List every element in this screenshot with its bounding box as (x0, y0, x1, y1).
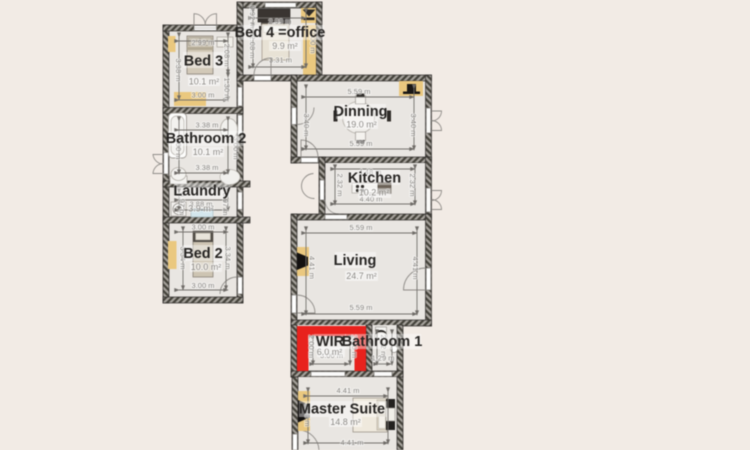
svg-text:Bed 3: Bed 3 (184, 54, 224, 70)
svg-text:10.1 m²: 10.1 m² (189, 77, 220, 87)
svg-text:3.34 m: 3.34 m (224, 247, 233, 270)
svg-text:2.99 m: 2.99 m (192, 38, 215, 47)
svg-text:14.8 m²: 14.8 m² (330, 417, 361, 427)
svg-text:3.40 m: 3.40 m (409, 114, 418, 137)
svg-text:3.38 m: 3.38 m (174, 59, 183, 82)
svg-text:3.38 m: 3.38 m (196, 163, 219, 172)
svg-text:2.32 m: 2.32 m (408, 174, 417, 197)
svg-text:24.7 m²: 24.7 m² (346, 271, 377, 281)
svg-text:3.40 m: 3.40 m (302, 114, 311, 137)
svg-text:3.9 m²: 3.9 m² (188, 204, 214, 214)
svg-text:Kitchen: Kitchen (348, 171, 401, 187)
svg-text:5.59 m: 5.59 m (350, 139, 373, 148)
svg-text:3.00 m: 3.00 m (192, 223, 215, 232)
svg-text:2.32 m: 2.32 m (336, 174, 345, 197)
svg-text:1.29 m: 1.29 m (372, 354, 395, 363)
svg-text:Laundry: Laundry (173, 184, 230, 200)
svg-text:Bed 2: Bed 2 (183, 246, 223, 262)
svg-text:1.30 m: 1.30 m (223, 78, 232, 101)
svg-text:4.41 m: 4.41 m (308, 256, 317, 279)
svg-text:4.41 m: 4.41 m (411, 257, 420, 280)
svg-text:Dinning: Dinning (334, 104, 388, 120)
svg-text:5.59 m: 5.59 m (350, 303, 373, 312)
svg-text:WIR: WIR (316, 334, 345, 350)
svg-text:9.9 m²: 9.9 m² (272, 41, 298, 51)
svg-text:Living: Living (334, 253, 377, 269)
svg-text:19.0 m²: 19.0 m² (346, 120, 377, 130)
svg-text:Bathroom 1: Bathroom 1 (342, 334, 423, 350)
svg-text:5.59 m: 5.59 m (350, 223, 373, 232)
svg-text:4.41 m: 4.41 m (337, 386, 360, 395)
svg-text:10.2 m²: 10.2 m² (359, 188, 390, 198)
svg-text:Bathroom 2: Bathroom 2 (166, 131, 247, 147)
svg-text:3.38 m: 3.38 m (196, 121, 219, 130)
svg-text:4.41 m: 4.41 m (341, 438, 364, 447)
svg-text:10.0 m²: 10.0 m² (191, 262, 222, 272)
svg-text:10.1 m²: 10.1 m² (193, 147, 224, 157)
svg-text:3.00 m: 3.00 m (192, 91, 215, 100)
svg-text:Bed 4 =office: Bed 4 =office (235, 25, 326, 41)
svg-text:5.59 m: 5.59 m (348, 87, 371, 96)
svg-text:3.31 m: 3.31 m (269, 56, 292, 65)
svg-text:3.00 m: 3.00 m (192, 281, 215, 290)
svg-text:Master Suite: Master Suite (299, 402, 385, 418)
